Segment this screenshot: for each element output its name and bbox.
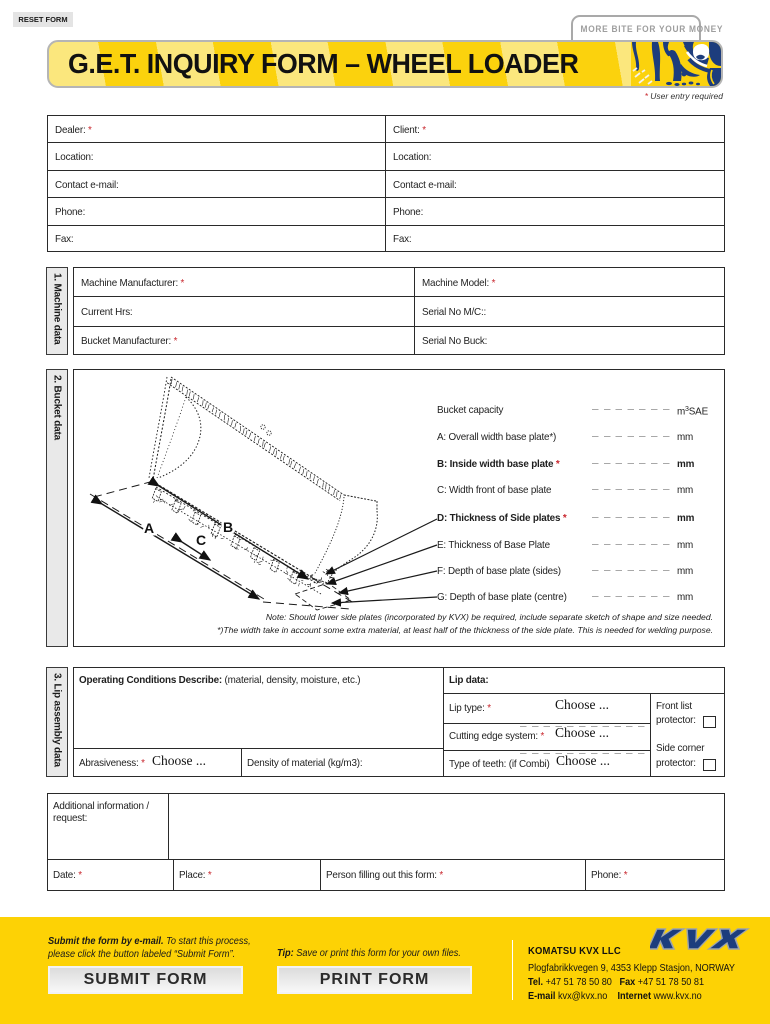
svg-text:C: C	[196, 532, 206, 548]
svg-text:A: A	[144, 520, 154, 536]
svg-text:B: B	[223, 519, 233, 535]
